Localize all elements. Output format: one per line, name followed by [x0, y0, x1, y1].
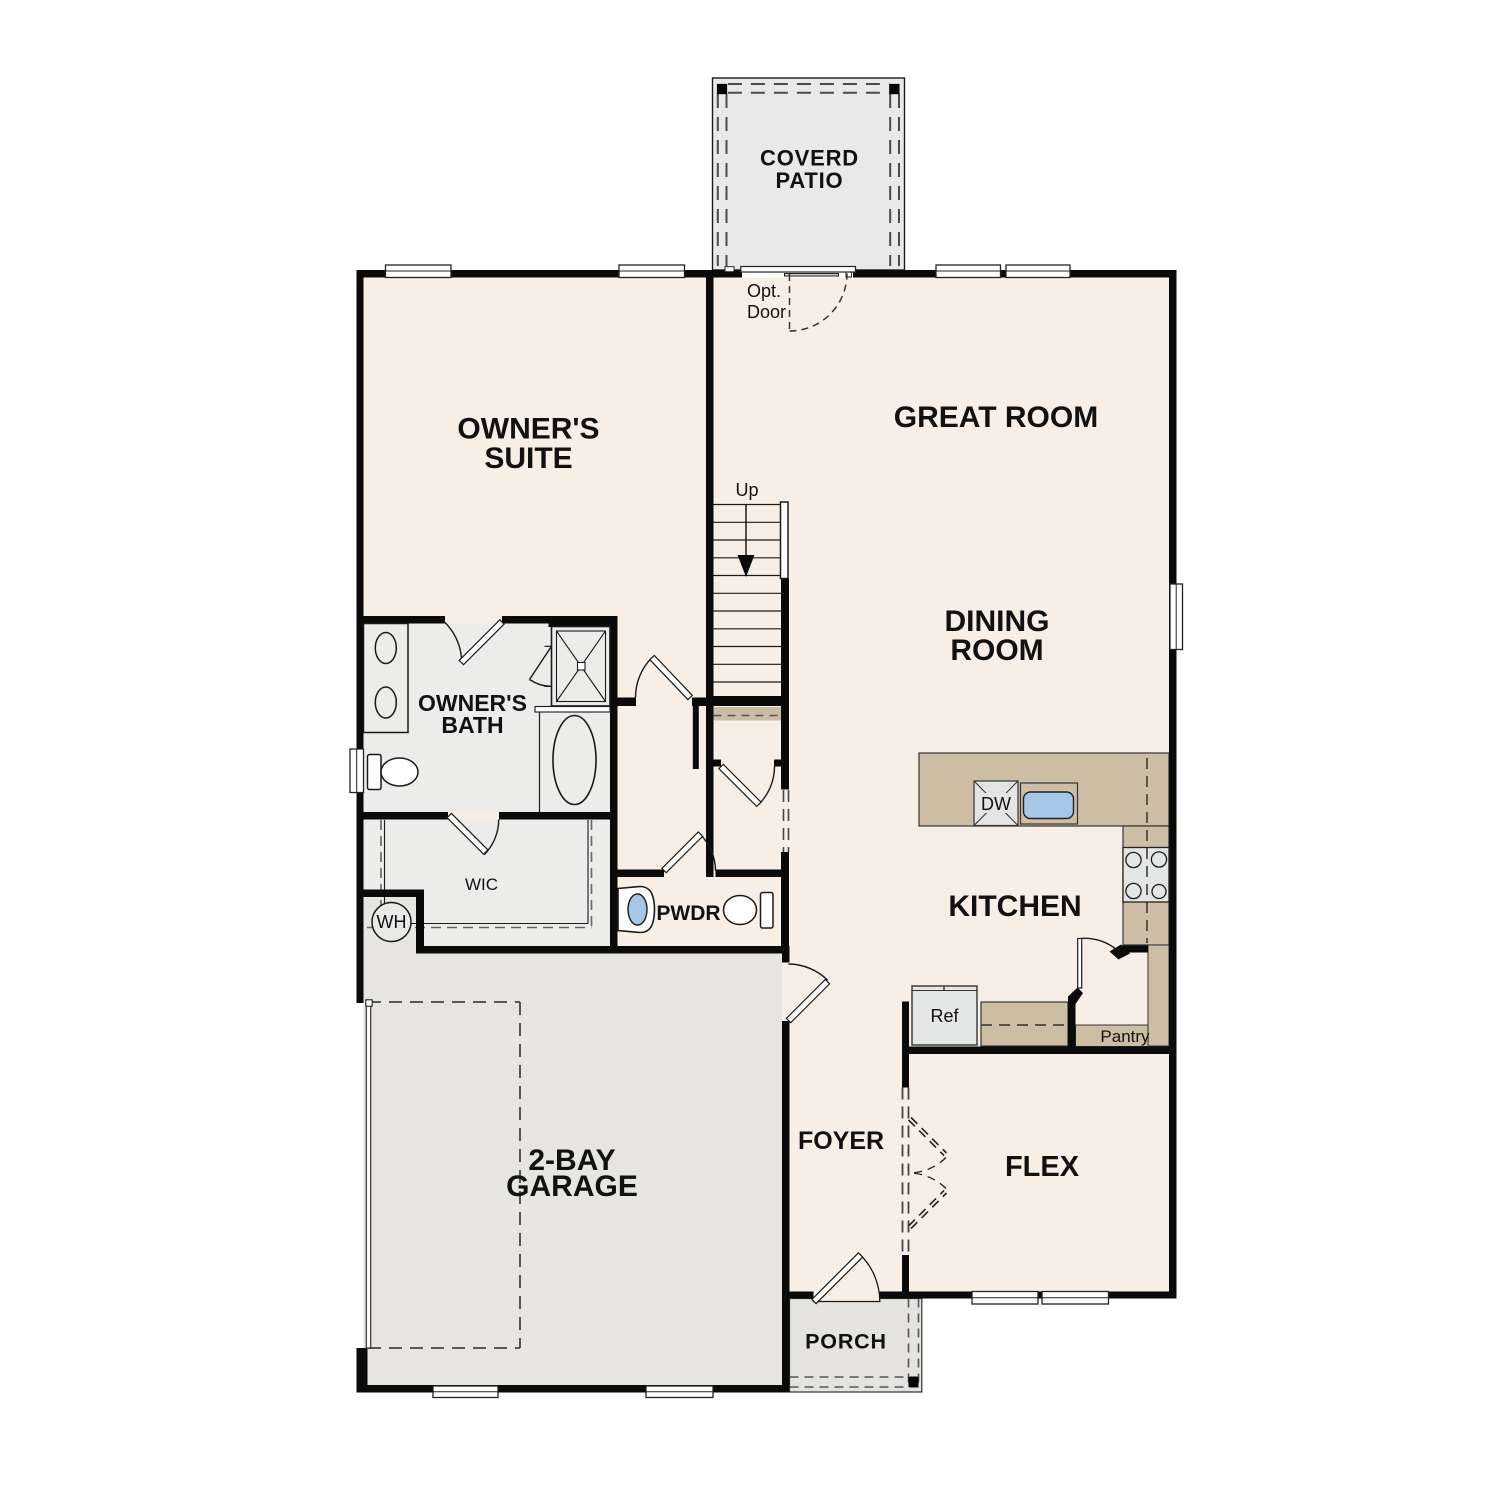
svg-text:FLEX: FLEX: [1005, 1151, 1080, 1183]
svg-text:PATIO: PATIO: [776, 168, 844, 193]
svg-text:OWNER'S: OWNER'S: [457, 413, 599, 446]
svg-text:WIC: WIC: [465, 875, 498, 894]
svg-text:FOYER: FOYER: [798, 1127, 884, 1155]
svg-text:Up: Up: [735, 480, 758, 500]
svg-text:BATH: BATH: [441, 712, 503, 738]
svg-text:GARAGE: GARAGE: [506, 1170, 638, 1203]
svg-text:PORCH: PORCH: [805, 1330, 887, 1354]
svg-text:WH: WH: [377, 912, 407, 932]
svg-text:Door: Door: [747, 302, 786, 322]
svg-text:ROOM: ROOM: [950, 634, 1043, 667]
svg-text:Pantry: Pantry: [1100, 1027, 1150, 1046]
svg-text:Ref: Ref: [930, 1006, 959, 1026]
svg-text:KITCHEN: KITCHEN: [948, 890, 1081, 923]
svg-text:COVERD: COVERD: [760, 146, 859, 171]
svg-text:PWDR: PWDR: [656, 902, 720, 925]
svg-text:DW: DW: [981, 794, 1011, 814]
svg-text:SUITE: SUITE: [484, 442, 572, 475]
svg-text:GREAT ROOM: GREAT ROOM: [894, 401, 1098, 434]
svg-text:Opt.: Opt.: [747, 281, 781, 301]
